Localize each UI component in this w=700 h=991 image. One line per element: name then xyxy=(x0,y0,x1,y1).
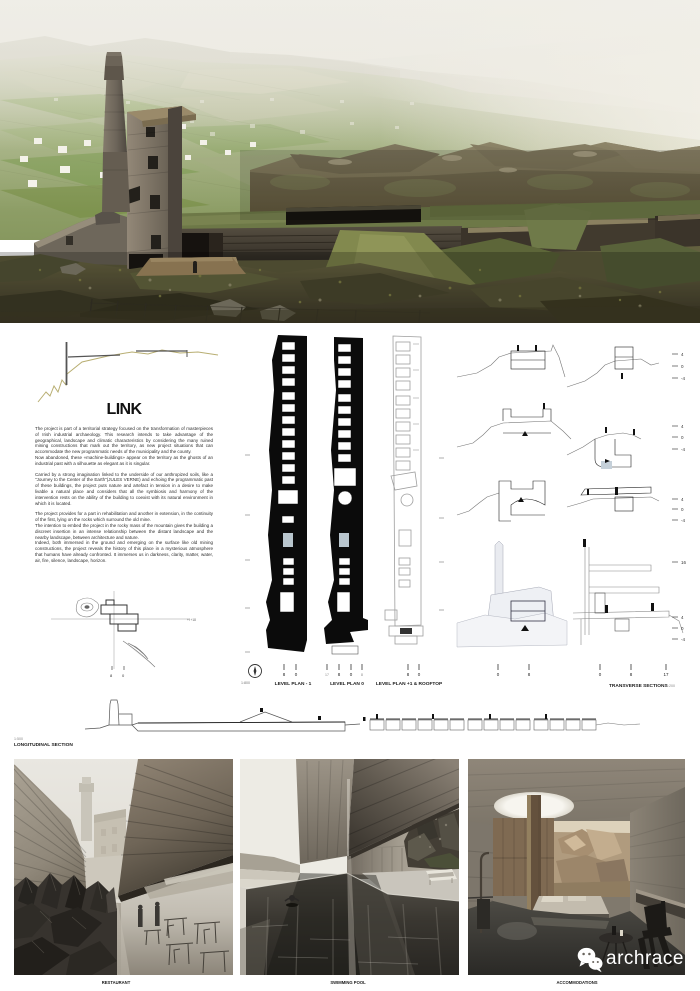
svg-text:0: 0 xyxy=(599,672,602,677)
svg-text:-4: -4 xyxy=(681,376,685,381)
svg-text:0: 0 xyxy=(295,672,298,677)
svg-text:-4: -4 xyxy=(681,518,685,523)
svg-text:4: 4 xyxy=(681,424,684,429)
svg-text:0: 0 xyxy=(122,673,125,678)
svg-text:8: 8 xyxy=(338,672,341,677)
svg-text:8: 8 xyxy=(528,672,531,677)
svg-text:0: 0 xyxy=(681,507,684,512)
svg-text:17: 17 xyxy=(663,672,669,677)
svg-text:8: 8 xyxy=(630,672,633,677)
svg-text:0: 0 xyxy=(350,672,353,677)
svg-text:-4: -4 xyxy=(681,447,685,452)
svg-text:8: 8 xyxy=(110,673,113,678)
svg-text:8: 8 xyxy=(407,672,410,677)
svg-text:-4: -4 xyxy=(681,637,685,642)
svg-text:16: 16 xyxy=(681,560,687,565)
svg-text:0: 0 xyxy=(418,672,421,677)
svg-text:0: 0 xyxy=(681,435,684,440)
svg-text:4: 4 xyxy=(681,497,684,502)
svg-text:4: 4 xyxy=(681,615,684,620)
svg-text:4: 4 xyxy=(681,352,684,357)
svg-text:8: 8 xyxy=(361,673,363,677)
svg-text:0: 0 xyxy=(497,672,500,677)
svg-text:0: 0 xyxy=(681,626,684,631)
svg-text:8: 8 xyxy=(283,672,286,677)
svg-text:17: 17 xyxy=(325,673,329,677)
svg-text:0: 0 xyxy=(681,364,684,369)
svg-text:+i +18: +i +18 xyxy=(187,618,196,622)
